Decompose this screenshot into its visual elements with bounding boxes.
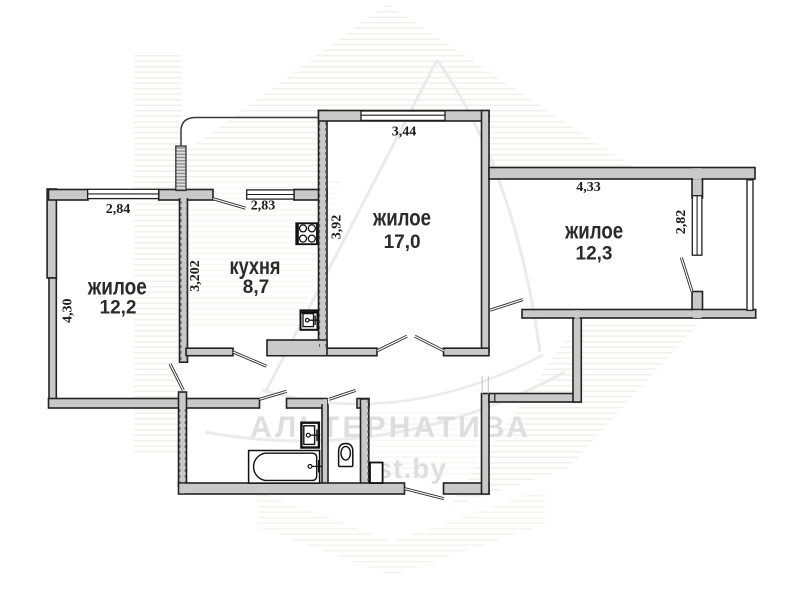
svg-text:3,44: 3,44 [392, 125, 417, 140]
svg-text:3,202: 3,202 [188, 260, 203, 292]
svg-text:жилое: жилое [564, 217, 623, 243]
svg-text:4,30: 4,30 [61, 298, 76, 323]
svg-text:3,92: 3,92 [330, 215, 345, 240]
svg-text:жилое: жилое [87, 274, 147, 300]
svg-text:2,84: 2,84 [106, 202, 131, 217]
svg-text:4,33: 4,33 [576, 180, 601, 195]
svg-text:кухня: кухня [230, 253, 281, 279]
svg-text:12,2: 12,2 [100, 298, 137, 319]
svg-text:12,3: 12,3 [576, 244, 613, 265]
svg-text:8,7: 8,7 [243, 277, 269, 298]
svg-text:17,0: 17,0 [384, 232, 421, 253]
svg-text:2,83: 2,83 [251, 199, 276, 214]
svg-text:2,82: 2,82 [674, 210, 689, 235]
svg-text:жилое: жилое [372, 204, 431, 230]
